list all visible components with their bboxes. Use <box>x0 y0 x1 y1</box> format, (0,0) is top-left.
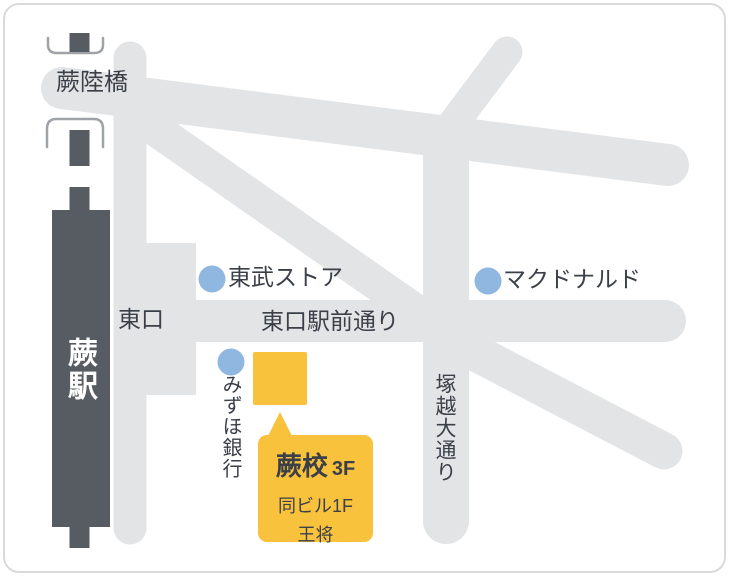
mizuho-bank-marker-icon <box>218 349 245 376</box>
bridge-label: 蕨陸橋 <box>56 71 128 95</box>
railway-dash <box>70 130 90 166</box>
mcdonalds-marker-icon <box>475 268 502 295</box>
school-callout: 蕨校3F 同ビル1F 王将 <box>258 435 373 542</box>
railway-dash <box>70 187 90 211</box>
station-label: 蕨駅 <box>64 337 94 403</box>
railway-dash <box>70 525 90 548</box>
road-diagonal-southeast <box>474 352 664 451</box>
school-name-line: 蕨校3F <box>258 446 373 483</box>
east-exit-label: 東口 <box>118 308 164 331</box>
callout-note-1: 同ビル1F <box>258 492 373 518</box>
railway-dash <box>70 33 90 52</box>
tsukagoshi-street-label: 塚越大通り <box>434 373 455 483</box>
ekimae-street-label: 東口駅前通り <box>261 310 399 333</box>
access-map: 蕨陸橋 蕨駅 東口 東口駅前通り 塚越大通り 東武ストア マクドナルド みずほ銀… <box>0 0 730 584</box>
mcdonalds-label: マクドナルド <box>503 268 641 291</box>
tobu-store-marker-icon <box>199 266 226 293</box>
school-building-marker <box>253 352 307 405</box>
school-name: 蕨校 <box>276 451 328 481</box>
school-floor: 3F <box>332 458 355 480</box>
road-spur-northeast <box>450 52 507 128</box>
mizuho-bank-label: みずほ銀行 <box>220 374 240 479</box>
tobu-store-label: 東武ストア <box>228 266 343 289</box>
callout-note-2: 王将 <box>258 521 373 547</box>
callout-pointer-icon <box>268 412 292 436</box>
